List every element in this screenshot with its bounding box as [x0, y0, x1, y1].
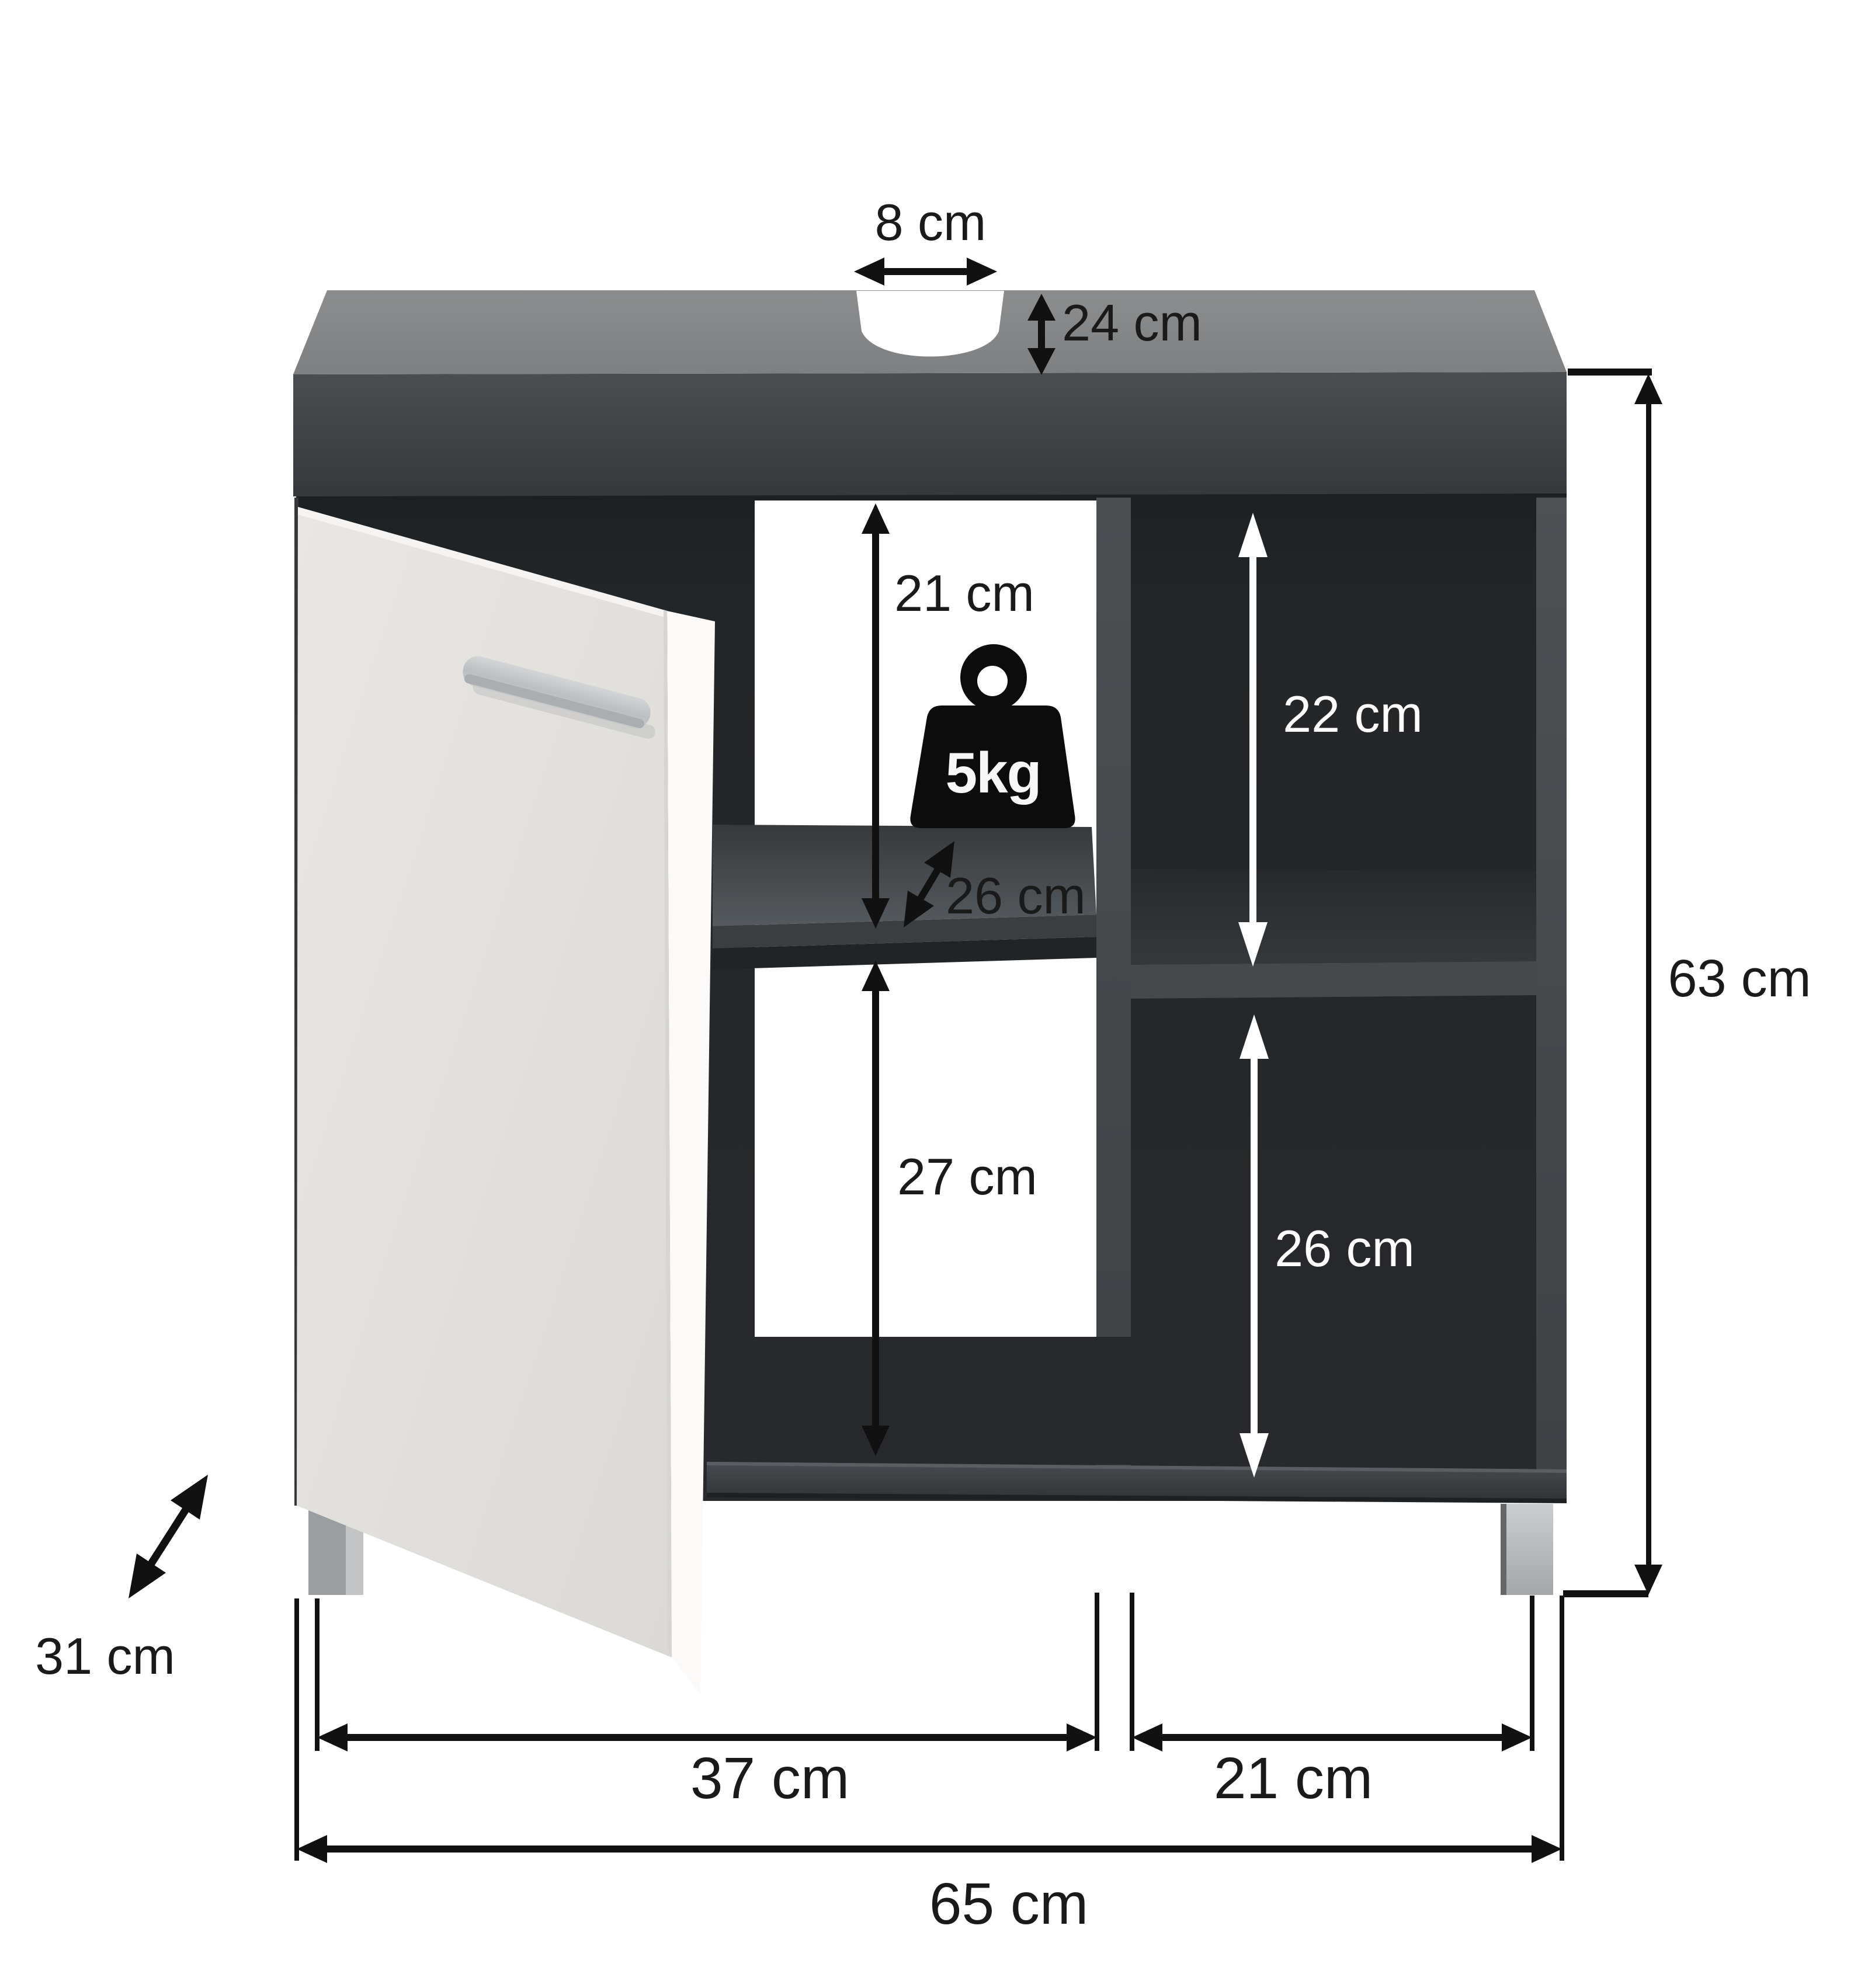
svg-text:26 cm: 26 cm: [1275, 1219, 1415, 1277]
svg-text:8 cm: 8 cm: [875, 193, 987, 251]
svg-text:63 cm: 63 cm: [1668, 950, 1811, 1008]
svg-text:37 cm: 37 cm: [690, 1746, 849, 1811]
svg-text:26 cm: 26 cm: [946, 867, 1086, 925]
svg-text:65 cm: 65 cm: [929, 1871, 1088, 1937]
svg-text:21 cm: 21 cm: [1214, 1746, 1373, 1811]
svg-text:22 cm: 22 cm: [1283, 685, 1423, 743]
svg-text:27 cm: 27 cm: [897, 1148, 1037, 1205]
svg-text:31 cm: 31 cm: [35, 1627, 175, 1685]
svg-text:5kg: 5kg: [946, 741, 1041, 805]
svg-text:24 cm: 24 cm: [1062, 294, 1202, 352]
svg-text:21 cm: 21 cm: [894, 564, 1034, 622]
